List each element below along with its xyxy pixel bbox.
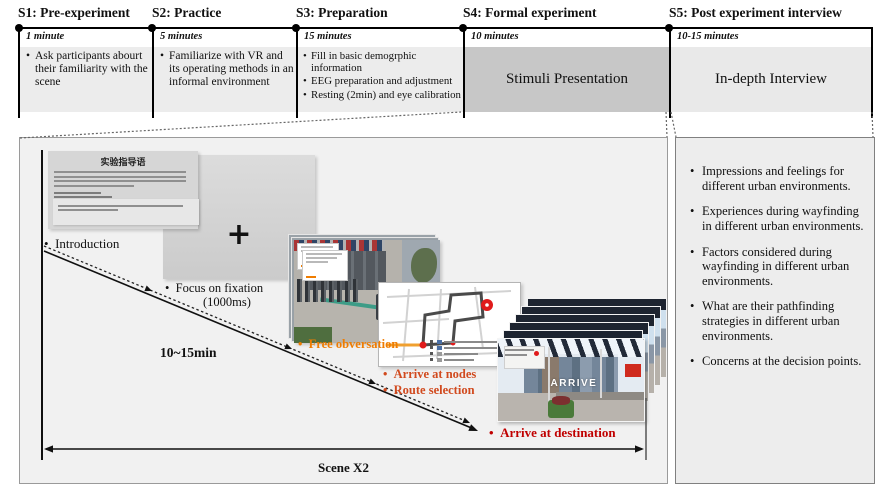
stage-content-label: In-depth Interview [715,71,827,88]
interview-bullet: Impressions and feelings for different u… [688,164,864,193]
instruction-note-card [53,199,199,225]
stage-duration: 5 minutes [154,28,296,46]
stimuli-presentation-box: Stimuli Presentation [465,47,669,112]
stage-title-s4: S4: Formal experiment [463,5,596,21]
stage-bullet: Ask participants abourt their familiarit… [24,50,150,89]
stage-duration: 15 minutes [298,28,463,46]
interview-bullet: Experiences during wayfinding in differe… [688,204,864,233]
instruction-text-line [54,180,186,182]
stage-bullet: Resting (2min) and eye calibration [302,89,461,101]
instruction-text-line [54,171,186,173]
map-board-pin [534,351,539,356]
flow-duration-label: 10~15min [160,345,217,361]
stage-s5-post-interview: 10-15 minutes In-depth Interview [669,28,871,118]
interview-topics-panel: Impressions and feelings for different u… [675,137,875,484]
note-text-line [58,209,118,211]
mini-map-route-mark [306,276,316,278]
arrive-sign-text: ARRIVE [551,378,598,389]
mini-map-card [302,250,348,281]
stage-duration: 1 minute [20,28,152,46]
arrive-photo: ARRIVE [497,338,645,422]
step-label-fixation: Focus on fixation (1000ms) [165,281,263,310]
stage-title-s2: S2: Practice [152,5,221,21]
route-start-dot [420,342,427,349]
planter [548,400,574,418]
instruction-task-line [54,196,112,198]
instruction-text-line [54,185,134,187]
stage-content: Ask participants abourt their familiarit… [20,47,152,112]
stage-content: Familiarize with VR and its operating me… [154,47,296,112]
step-label-introduction: Introduction [44,236,119,251]
stage-s3-preparation: 15 minutes Fill in basic demogrphic info… [296,28,463,118]
stage-duration: 10-15 minutes [671,28,871,46]
instruction-task-line [54,192,101,194]
stage-content-label: Stimuli Presentation [506,71,628,88]
stage-bullet: Familiarize with VR and its operating me… [158,50,294,89]
stage-title-s3: S3: Preparation [296,5,388,21]
stage-title-s1: S1: Pre-experiment [18,5,130,21]
pergola-column [600,349,602,398]
stage-s1-pre-experiment: 1 minute Ask participants abourt their f… [18,28,152,118]
stage-content: Fill in basic demogrphic information EEG… [298,47,463,112]
stage-duration: 10 minutes [465,28,669,46]
fixation-cross: + [226,217,251,252]
stage-bullet: Fill in basic demogrphic information [302,50,461,74]
scene-repeat-label: Scene X2 [19,460,668,476]
stage-title-s5: S5: Post experiment interview [669,5,842,21]
step-label-arrive-destination: Arrive at destination [489,425,616,440]
instruction-slide-title: 实验指导语 [54,155,192,168]
in-depth-interview-box: In-depth Interview [671,47,871,112]
map-board [504,346,545,369]
note-text-line [58,205,183,207]
timeline-end-border [871,28,873,118]
red-storefront-sign [625,364,641,377]
stage-bullet: EEG preparation and adjustment [302,75,461,87]
interview-bullet: Concerns at the decision points. [688,354,864,369]
instruction-text-line [54,176,186,178]
step-label-nodes-route: Arrive at nodes Route selection [383,366,476,399]
experiment-procedure-figure: S1: Pre-experiment S2: Practice S3: Prep… [0,0,880,497]
interview-bullet: Factors considered during wayfinding in … [688,245,864,289]
interview-bullet: What are their pathfinding strategies in… [688,299,864,343]
step-label-free-observation: Free obversation [298,337,398,351]
crowd [297,279,358,302]
stage-s4-formal-experiment: 10 minutes Stimuli Presentation [463,28,669,118]
stage-s2-practice: 5 minutes Familiarize with VR and its op… [152,28,296,118]
